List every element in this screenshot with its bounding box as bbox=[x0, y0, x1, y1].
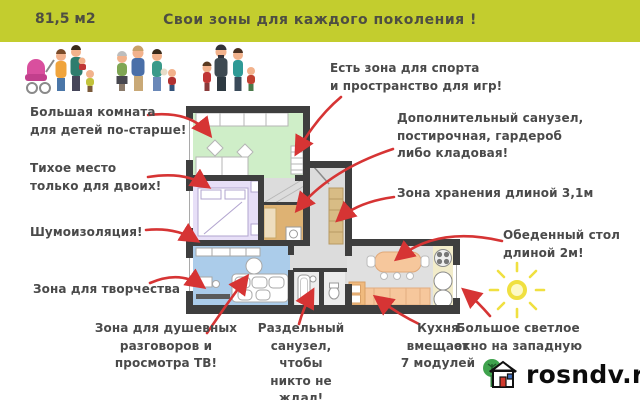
grandparents-family-icon bbox=[117, 46, 177, 91]
annotation-kitchen-modules: Кухня вмещает 7 модулей bbox=[399, 320, 477, 373]
red-arrow bbox=[465, 291, 490, 316]
washing-machine bbox=[286, 227, 301, 241]
house-logo-icon bbox=[481, 357, 521, 391]
annotation-dining-table: Обеденный стол длиной 2м! bbox=[503, 227, 620, 262]
annotation-big-room: Большая комната для детей по-старше! bbox=[30, 104, 187, 139]
annotation-tv-zone: Зона для душевных разговоров и просмотра… bbox=[90, 320, 242, 373]
annotation-quiet-place: Тихое место только для двоих! bbox=[30, 160, 161, 195]
tv-stand bbox=[196, 294, 230, 299]
annotation-storage-zone: Зона хранения длиной 3,1м bbox=[397, 185, 593, 203]
sink bbox=[434, 272, 452, 290]
site-watermark: rosndv.ru bbox=[481, 357, 640, 391]
stove-hob bbox=[435, 250, 452, 267]
kitchen-counter bbox=[358, 288, 430, 305]
parents-kids-icon bbox=[203, 45, 256, 92]
annotation-extra-bathroom: Дополнительный санузел, постирочная, гар… bbox=[397, 110, 583, 163]
listing-image: 81,5 м2 Свои зоны для каждого поколения … bbox=[0, 0, 640, 400]
family-icons bbox=[25, 45, 255, 94]
annotation-sport-zone: Есть зона для спорта и пространство для … bbox=[330, 60, 502, 95]
watermark-site-name: rosndv.ru bbox=[526, 360, 640, 389]
wardrobe-nook bbox=[261, 178, 307, 205]
toilet bbox=[329, 287, 339, 299]
dining-table bbox=[375, 252, 421, 272]
sun-icon bbox=[490, 263, 544, 317]
annotation-creative-zone: Зона для творчества bbox=[33, 281, 180, 299]
family-with-stroller-icon bbox=[25, 45, 94, 93]
annotation-soundproofing: Шумоизоляция! bbox=[30, 224, 143, 242]
annotation-separate-bathroom: Раздельный санузел, чтобы никто не ждал! bbox=[250, 320, 352, 400]
